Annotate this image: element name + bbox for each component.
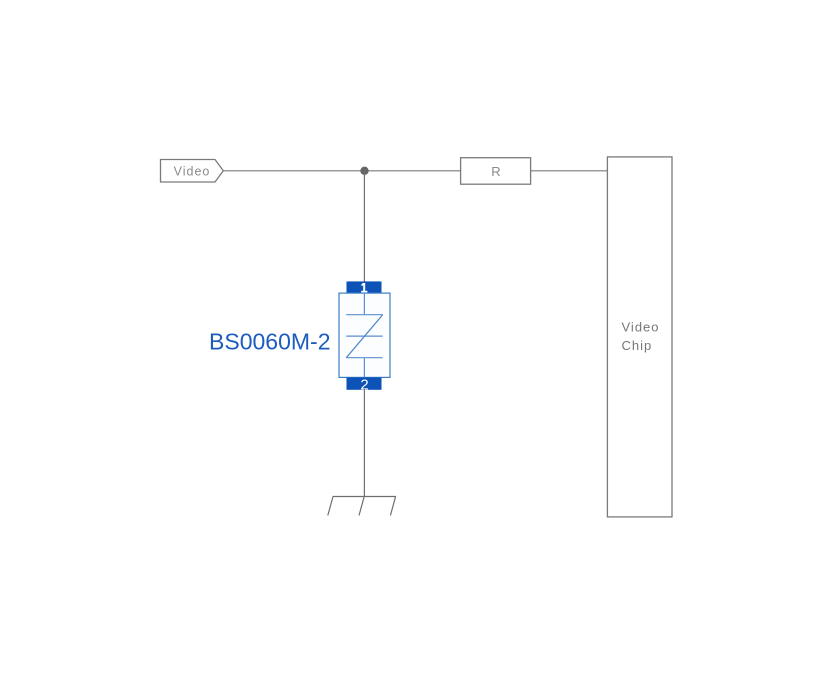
svg-text:BS0060M-2: BS0060M-2 [209, 329, 330, 355]
svg-text:R: R [491, 164, 500, 179]
svg-text:Chip: Chip [622, 338, 653, 353]
svg-text:Video: Video [622, 320, 660, 335]
svg-text:Video: Video [174, 165, 211, 179]
